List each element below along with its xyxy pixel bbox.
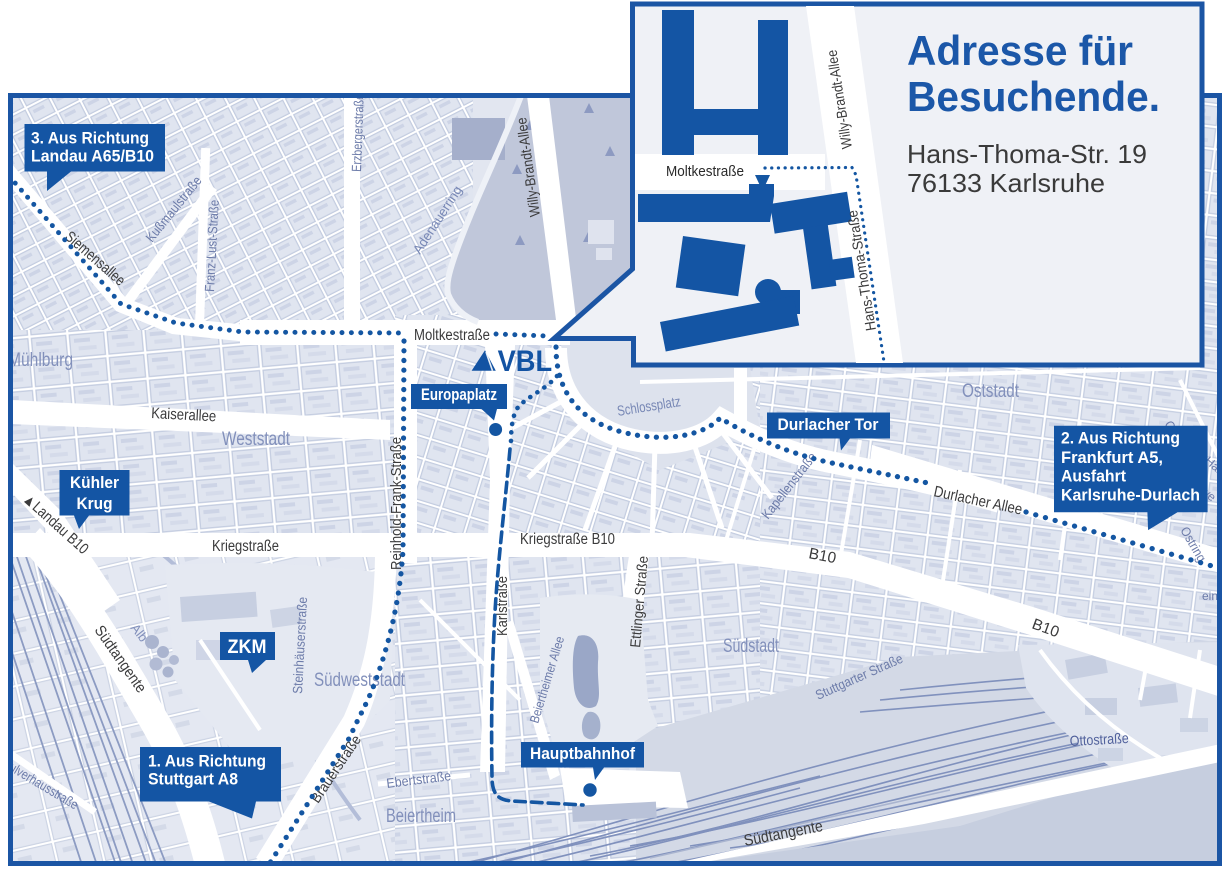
svg-text:Besuchende.: Besuchende. <box>907 73 1160 120</box>
svg-text:3. Aus Richtung: 3. Aus Richtung <box>31 130 149 148</box>
svg-text:Beiertheim: Beiertheim <box>386 805 456 827</box>
svg-text:Ottostraße: Ottostraße <box>1069 731 1129 750</box>
svg-text:2. Aus Richtung: 2. Aus Richtung <box>1061 430 1180 448</box>
svg-text:Weststadt: Weststadt <box>222 428 290 450</box>
svg-text:Hauptbahnhof: Hauptbahnhof <box>530 745 635 763</box>
svg-text:Kaiserallee: Kaiserallee <box>151 405 217 425</box>
svg-text:Moltkestraße: Moltkestraße <box>666 164 744 180</box>
svg-text:Oststadt: Oststadt <box>962 380 1019 402</box>
svg-text:Moltkestraße: Moltkestraße <box>414 327 490 344</box>
svg-text:Kühler: Kühler <box>70 474 120 492</box>
svg-text:Hans-Thoma-Str. 19: Hans-Thoma-Str. 19 <box>907 139 1147 169</box>
svg-text:ZKM: ZKM <box>228 636 267 658</box>
svg-text:1. Aus Richtung: 1. Aus Richtung <box>148 753 266 771</box>
svg-text:76133 Karlsruhe: 76133 Karlsruhe <box>907 168 1105 198</box>
svg-text:Frankfurt A5,: Frankfurt A5, <box>1061 449 1163 467</box>
svg-text:Kriegstraße: Kriegstraße <box>212 538 279 555</box>
svg-text:Europaplatz: Europaplatz <box>421 386 497 404</box>
svg-text:ein: ein <box>1202 589 1218 603</box>
svg-text:Südstadt: Südstadt <box>723 635 779 657</box>
svg-text:Ausfahrt: Ausfahrt <box>1061 468 1126 486</box>
svg-text:Kriegstraße B10: Kriegstraße B10 <box>520 531 615 548</box>
svg-text:Erzbergerstraße: Erzbergerstraße <box>349 94 367 172</box>
svg-text:Krug: Krug <box>77 495 113 513</box>
svg-text:Mühlburg: Mühlburg <box>8 349 73 371</box>
svg-text:Durlacher Tor: Durlacher Tor <box>778 416 880 434</box>
svg-text:Südweststadt: Südweststadt <box>314 669 405 691</box>
svg-text:Landau A65/B10: Landau A65/B10 <box>31 148 154 166</box>
svg-text:VBL: VBL <box>498 345 552 378</box>
svg-text:Karlsruhe-Durlach: Karlsruhe-Durlach <box>1061 487 1200 505</box>
svg-text:Adresse für: Adresse für <box>907 27 1133 74</box>
svg-text:Stuttgart A8: Stuttgart A8 <box>148 771 238 789</box>
